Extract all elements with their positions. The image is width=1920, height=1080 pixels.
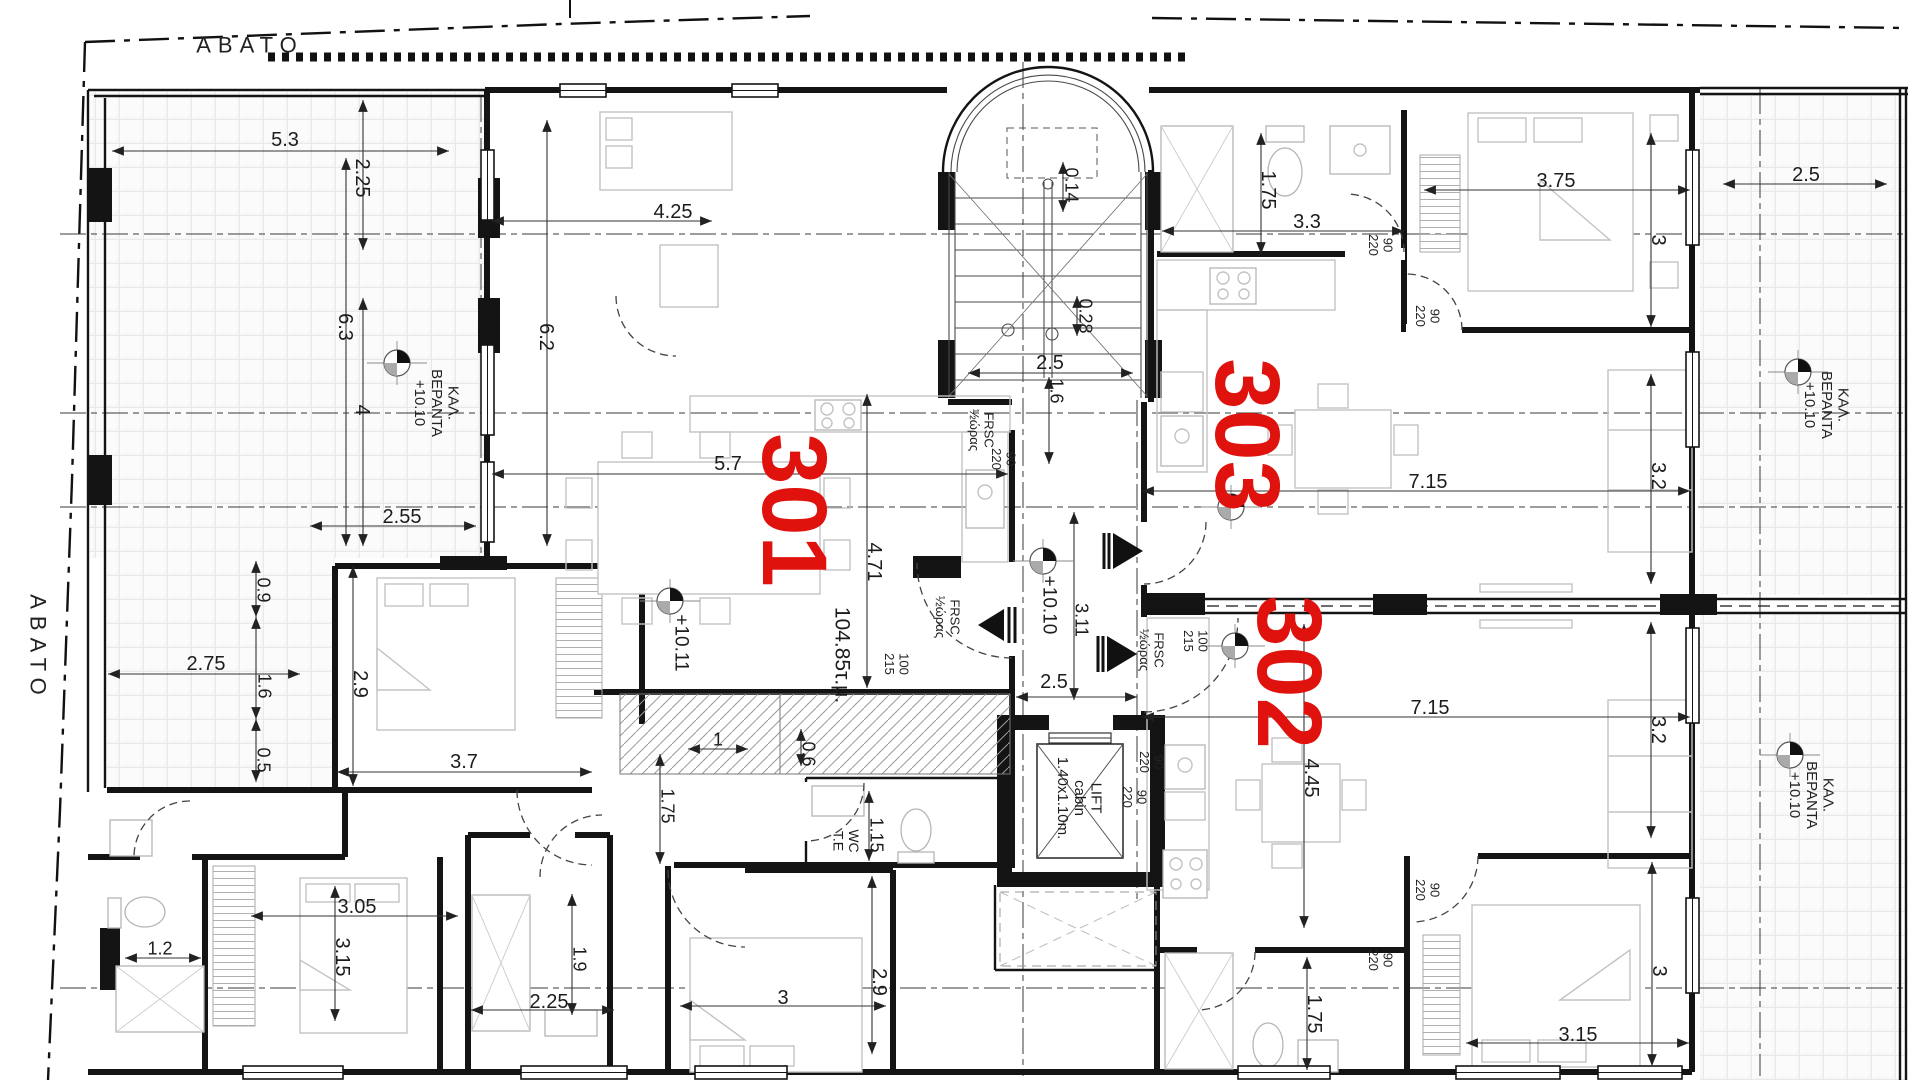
window	[1598, 1066, 1682, 1079]
door-90-220-5: 90220	[1120, 786, 1150, 808]
dim-3-br: 3	[1648, 965, 1670, 976]
window	[521, 1066, 627, 1079]
dim-3-05: 3.05	[338, 896, 377, 918]
dim-3-75: 3.75	[1537, 170, 1576, 192]
window	[481, 345, 494, 435]
window	[560, 84, 606, 97]
window	[1686, 352, 1699, 447]
dim-2-9-b: 2.9	[868, 968, 890, 996]
window	[1238, 1066, 1330, 1079]
dim-2-5-tr: 2.5	[1792, 164, 1820, 186]
dim-3-b: 3	[777, 987, 788, 1009]
door-100-215-2: 100215	[1181, 630, 1211, 652]
floor-plan-page: ΑΒΑΤΟΑΒΑΤΟΚΑΛ.ΒΕΡΑΝΤΑ+10.10ΚΑΛ.ΒΕΡΑΝΤΑ+1…	[0, 0, 1920, 1080]
stairwell	[943, 67, 1153, 398]
door-100-215-1: 100215	[882, 653, 912, 675]
dim-1-15: 1.15	[867, 817, 887, 852]
entrance-arrow	[1098, 636, 1137, 672]
dim-1-6-left: 1.6	[255, 673, 275, 698]
area-label: 104.85τ.μ.	[831, 607, 854, 703]
apartment-number-302: 302	[1238, 595, 1340, 749]
door-frsc-2: FRSC½ώρας	[933, 596, 963, 638]
dim-3-7: 3.7	[450, 751, 478, 773]
dim-1: 1	[713, 729, 723, 749]
window	[481, 150, 494, 220]
level-1011: +10.11	[670, 614, 691, 671]
window	[1686, 898, 1699, 993]
dim-0-14: 0.14	[1062, 167, 1082, 202]
dim-3-15-left: 3.15	[331, 938, 353, 977]
dim-7-15-upper: 7.15	[1409, 471, 1448, 493]
dim-4-25: 4.25	[654, 201, 693, 223]
dim-4-71: 4.71	[863, 543, 885, 582]
level-1010: +10.10	[1038, 576, 1059, 635]
window	[732, 84, 778, 97]
dim-5-7: 5.7	[714, 453, 742, 475]
dim-0-6: 0.6	[799, 741, 819, 766]
dim-1-6-stair: 1.6	[1047, 378, 1067, 403]
dim-5-3: 5.3	[271, 129, 299, 151]
dim-2-55: 2.55	[383, 506, 422, 528]
dim-2-25: 2.25	[351, 159, 373, 198]
dim-4: 4	[351, 404, 373, 415]
dim-6-2: 6.2	[535, 323, 557, 351]
dim-1-75-tr: 1.75	[1257, 171, 1279, 210]
dim-2-25-b: 2.25	[530, 991, 569, 1013]
window	[695, 1066, 787, 1079]
zone-avato-top: ΑΒΑΤΟ	[196, 33, 304, 58]
dim-0-5: 0.5	[254, 747, 274, 772]
entrance-arrow	[978, 607, 1015, 643]
window	[1456, 1066, 1560, 1079]
dim-2-9-bed: 2.9	[349, 670, 371, 698]
zone-avato-left: ΑΒΑΤΟ	[25, 594, 50, 702]
floor-plan-canvas: ΑΒΑΤΟΑΒΑΤΟΚΑΛ.ΒΕΡΑΝΤΑ+10.10ΚΑΛ.ΒΕΡΑΝΤΑ+1…	[0, 0, 1920, 1080]
dim-3-2-lower: 3.2	[1647, 716, 1669, 744]
dim-0-28: 0.28	[1076, 298, 1096, 333]
dim-3-11: 3.11	[1072, 603, 1092, 637]
apartment-number-303: 303	[1196, 358, 1298, 512]
wc-label: WCT.E	[830, 829, 862, 852]
dim-3-2-upper: 3.2	[1647, 462, 1669, 490]
dim-2-5-corr: 2.5	[1040, 671, 1068, 693]
dim-6-3: 6.3	[334, 313, 356, 341]
window	[1686, 628, 1699, 723]
door-90-220-7: 90220	[1366, 949, 1396, 971]
dim-1-9: 1.9	[570, 946, 590, 971]
door-frsc-3: FRSC½ώρας	[1137, 629, 1167, 671]
dim-3-tr: 3	[1647, 234, 1669, 245]
dim-7-15-lower: 7.15	[1411, 697, 1450, 719]
dim-1-75-br: 1.75	[1303, 995, 1325, 1034]
dim-3-3: 3.3	[1293, 211, 1321, 233]
door-frsc-1: FRSC½ώρας	[967, 409, 997, 451]
dim-1-75-hall: 1.75	[658, 788, 678, 823]
door-90-220-3: 90220	[1413, 305, 1443, 327]
window	[243, 1066, 343, 1079]
apartment-number-301: 301	[743, 433, 845, 587]
dim-0-9: 0.9	[254, 577, 274, 602]
dim-4-45: 4.45	[1300, 759, 1322, 798]
dim-1-2: 1.2	[147, 938, 172, 958]
dim-2-5-stair: 2.5	[1036, 352, 1064, 374]
dim-2-75: 2.75	[187, 653, 226, 675]
dim-3-15-br: 3.15	[1559, 1024, 1598, 1046]
window	[1686, 150, 1699, 245]
entrance-markers	[978, 533, 1143, 672]
door-90-220-6: 90220	[1413, 879, 1443, 901]
